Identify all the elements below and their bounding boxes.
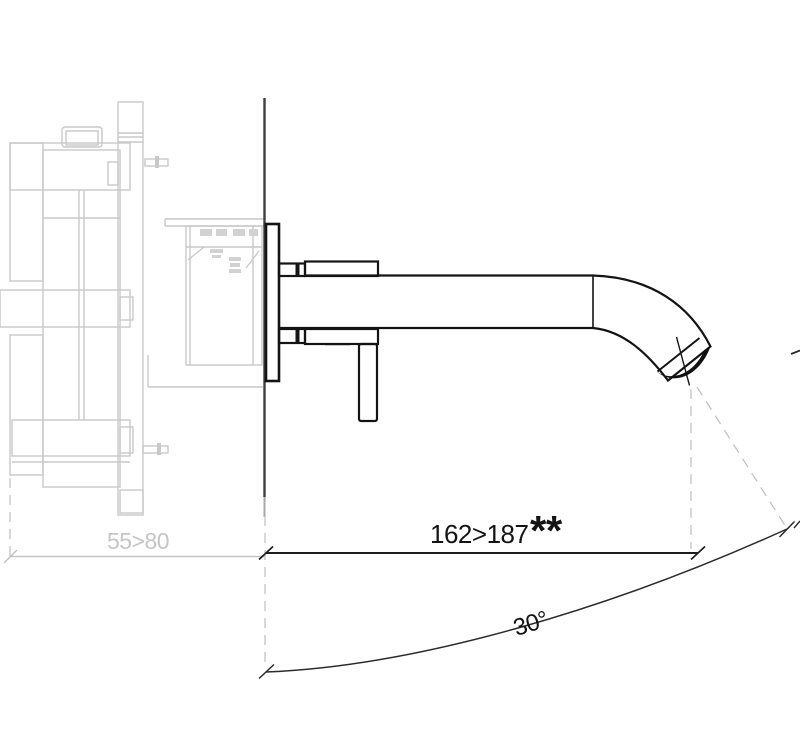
valve-bottom-pipe — [143, 446, 168, 453]
spout-projection-label: 162>187 — [430, 519, 528, 549]
swivel-arc — [266, 529, 787, 672]
swivel-angle-label: 30° — [510, 606, 551, 642]
valve-top-cap — [62, 127, 102, 147]
faucet-elevation-drawing: 55>80 162>187 ** 30° — [0, 0, 800, 743]
valve-hatch-details — [200, 229, 258, 273]
valve-mid-band — [0, 290, 130, 327]
spout-projection-asterisks: ** — [530, 507, 563, 554]
technical-drawing-canvas: 55>80 162>187 ** 30° — [0, 0, 800, 743]
valve-left-flange-top — [10, 143, 43, 281]
handle-wall-stub — [279, 329, 305, 343]
dimension-recess-depth: 55>80 — [4, 528, 265, 563]
dimension-spout-projection: 162>187 ** — [259, 507, 705, 560]
valve-bottom-band — [12, 420, 130, 456]
valve-main-body — [43, 150, 120, 487]
spout-wall-stub — [279, 264, 305, 277]
valve-bottom-cap — [120, 427, 133, 453]
aerator-center-tick — [677, 337, 690, 386]
valve-mid-cap — [120, 297, 133, 320]
handle-lever — [359, 344, 377, 421]
fixture — [266, 224, 711, 421]
spout-trim-sleeve — [305, 262, 378, 277]
spout-swivel-dashed — [697, 387, 786, 527]
recess-depth-label: 55>80 — [107, 528, 169, 554]
escutcheon-plate — [266, 224, 279, 381]
in-wall-valve-body — [0, 102, 350, 515]
handle-base — [305, 329, 378, 344]
spout-body — [279, 276, 711, 381]
right-edge-reference-marks — [791, 351, 800, 529]
valve-left-flange-bottom — [10, 335, 43, 475]
